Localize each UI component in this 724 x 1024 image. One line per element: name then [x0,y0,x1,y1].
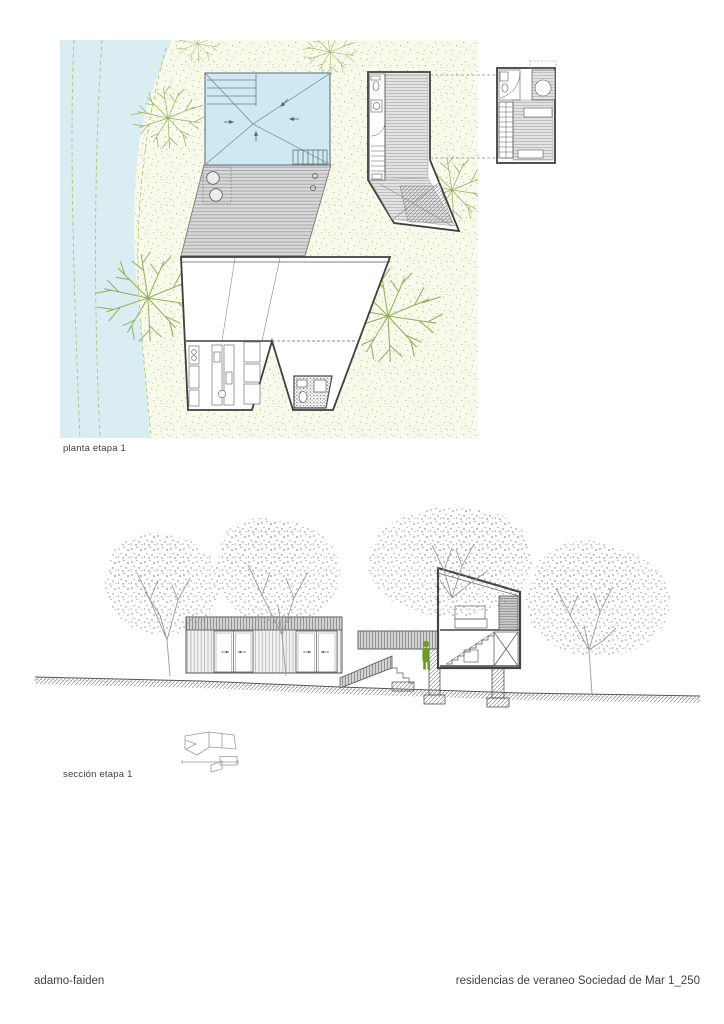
tree [368,507,532,617]
wood-deck-plan [181,165,331,256]
upper-module-plan [497,61,556,163]
pool-roof-plan [205,73,330,165]
human-figure [422,641,430,670]
sliding-door-pair [214,631,253,672]
plan-caption: planta etapa 1 [63,443,126,454]
ground [35,677,700,703]
sliding-door-pair [296,631,337,672]
drawing-sheet: planta etapa 1 sección etapa 1 adamo-fai… [0,0,724,1024]
section-figure [35,507,700,772]
left-pavilion-elevation [186,617,342,673]
footer-studio-name: adamo-faiden [34,975,104,987]
foundation-pier [487,668,509,707]
section-caption: sección etapa 1 [63,769,133,780]
bathroom-plan [294,376,332,408]
module-fixtures [370,74,386,180]
foundation-footing [392,682,414,691]
footer-project-title: residencias de veraneo Sociedad de Mar 1… [456,975,700,987]
key-diagram [182,732,238,772]
walkway-stairs [392,668,414,683]
architectural-drawings [0,0,724,1024]
site-plan-figure [60,24,556,438]
tree [526,540,670,694]
